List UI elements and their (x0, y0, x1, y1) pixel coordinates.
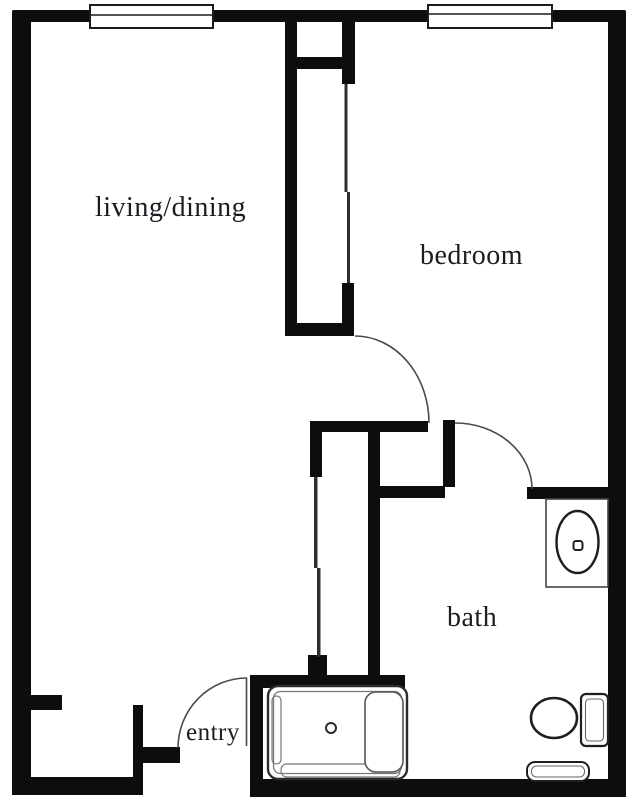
left-wall (12, 10, 31, 795)
hall-right-wall (368, 421, 380, 676)
bath-door-jamb-wall (443, 420, 455, 487)
room-label-bedroom: bedroom (420, 242, 523, 270)
room-label-living-dining: living/dining (95, 194, 246, 222)
closet-cap-wall (285, 323, 354, 336)
room-label-entry: entry (186, 720, 240, 745)
window-icon (90, 5, 213, 28)
sink-drain (574, 541, 583, 550)
right-wall (608, 10, 626, 797)
tub-drain (326, 723, 336, 733)
sink-icon (546, 499, 608, 587)
bath-left-wall (250, 675, 263, 779)
bathtub-icon (268, 686, 407, 779)
bath-top-wall (368, 486, 445, 498)
hall-closet-sliding-doors-icon (314, 477, 321, 657)
walls (12, 10, 626, 797)
bath-door-swing-icon (455, 423, 532, 489)
bottom-wall-left (12, 777, 143, 795)
closet-door-panel (347, 192, 350, 283)
closet-door-panel (345, 84, 348, 192)
toilet-bowl (531, 698, 577, 738)
floor-plan: living/dining bedroom bath entry (0, 0, 640, 805)
closet-door-panel (317, 568, 321, 657)
bedroom-closet-sliding-doors-icon (345, 84, 351, 283)
tub-seat (365, 692, 403, 772)
toilet-icon (531, 694, 608, 746)
closet-chase-connector (297, 57, 342, 69)
sink-wall-stub (527, 487, 610, 499)
closet-left-wall (285, 10, 297, 336)
entry-side-wall (133, 705, 143, 777)
bedroom-door-swing-icon (355, 336, 429, 423)
closet-door-panel (314, 477, 318, 568)
hall-left-bottom-block (308, 655, 327, 676)
entry-door-stub-wall (143, 747, 180, 763)
bath-mat-icon (527, 762, 589, 781)
room-label-bath: bath (447, 604, 497, 632)
window-icon (428, 5, 552, 28)
floor-plan-drawing (0, 0, 640, 805)
closet-chase-stub (342, 10, 355, 84)
kitchen-alcove-stub-wall (31, 695, 62, 710)
hall-left-top-block (310, 421, 322, 477)
